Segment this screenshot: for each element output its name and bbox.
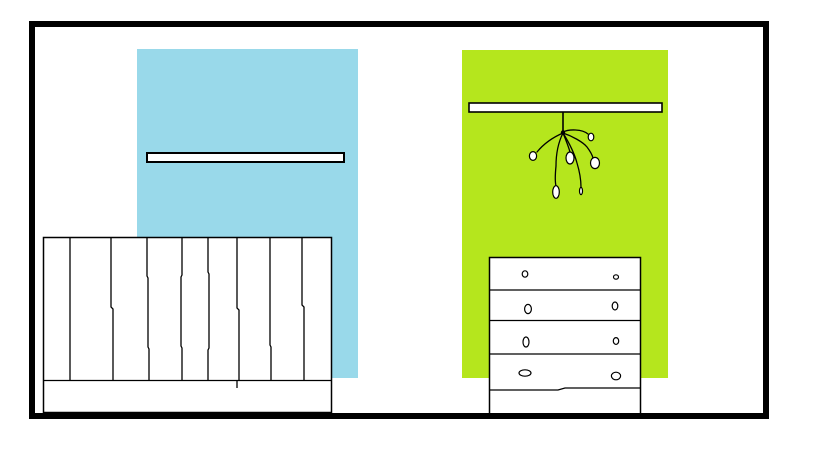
dresser-knob-5 (523, 337, 529, 347)
paint-drawing (0, 0, 819, 460)
dresser-knob-6 (613, 338, 618, 345)
dresser-knob-4 (612, 302, 618, 310)
mobile-ornament-2 (529, 152, 536, 161)
left-wall-shelf (147, 153, 344, 162)
crib-fence-box (44, 238, 332, 413)
mobile-ornament-5 (553, 186, 560, 199)
dresser-knob-3 (525, 304, 532, 313)
dresser-knob-7 (519, 370, 531, 376)
mobile-ornament-1 (588, 133, 594, 141)
mobile-ornament-6 (580, 187, 583, 194)
mobile-ornament-4 (591, 157, 600, 168)
mobile-ornament-3 (566, 152, 574, 164)
drawing-canvas (0, 0, 819, 460)
dresser-knob-8 (611, 372, 620, 380)
dresser-knob-2 (614, 275, 619, 279)
right-wall-shelf (469, 103, 662, 112)
dresser-box (490, 258, 641, 415)
mobile-knot (561, 130, 565, 134)
dresser-knob-1 (522, 271, 528, 277)
